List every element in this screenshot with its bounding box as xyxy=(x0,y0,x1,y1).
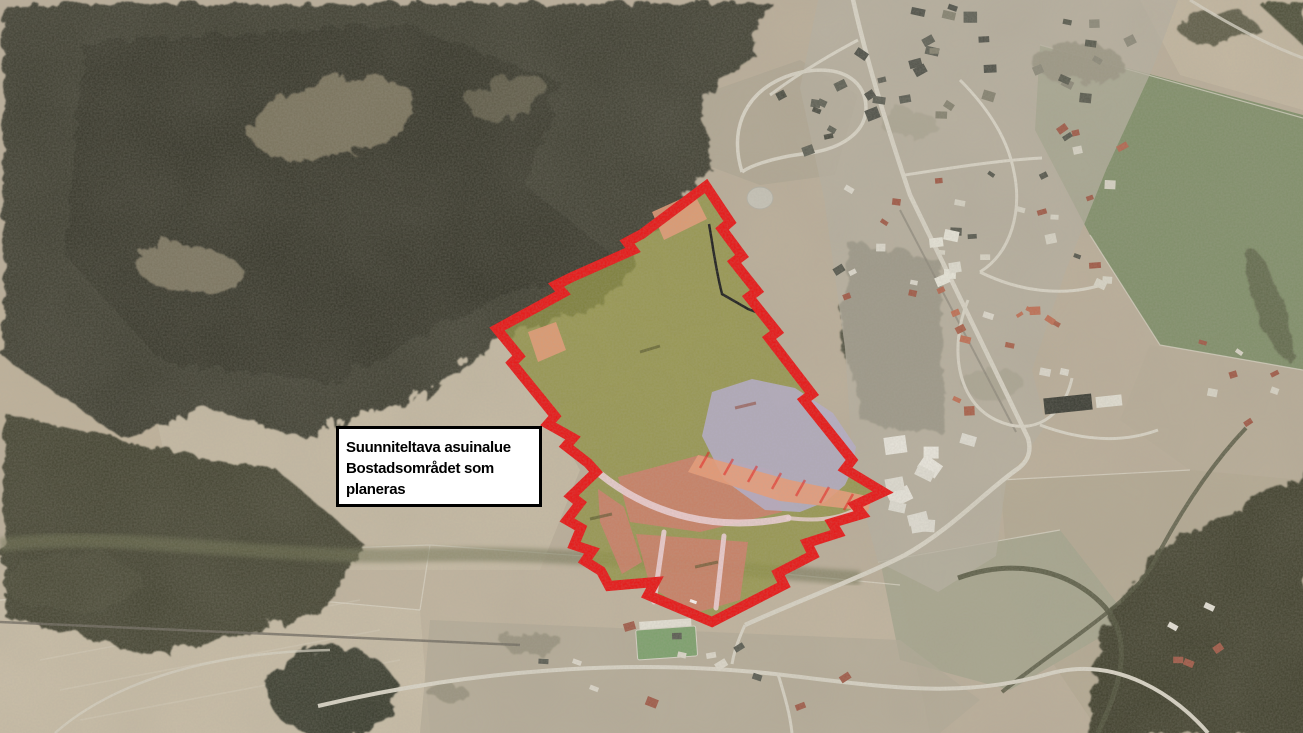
label-line-finnish: Suunniteltava asuinalue xyxy=(346,437,535,458)
house xyxy=(935,178,943,184)
house xyxy=(883,435,907,455)
planning-map-screenshot: Suunniteltava asuinalue Bostadsområdet s… xyxy=(0,0,1303,733)
house xyxy=(1104,180,1115,189)
tree-clump xyxy=(265,645,395,733)
house xyxy=(948,261,962,273)
house xyxy=(672,633,682,640)
house xyxy=(1089,19,1100,28)
house xyxy=(892,198,901,206)
aerial-photo-map xyxy=(0,0,1303,733)
house xyxy=(937,250,945,255)
house xyxy=(1079,93,1092,104)
house xyxy=(968,234,977,239)
house xyxy=(935,111,947,119)
industrial-hall xyxy=(635,618,698,660)
house xyxy=(876,244,885,252)
house xyxy=(1173,657,1183,664)
house xyxy=(978,36,989,43)
house xyxy=(538,659,548,665)
house xyxy=(1050,215,1058,220)
roundabout xyxy=(747,187,773,209)
house xyxy=(964,12,978,23)
house xyxy=(984,64,997,73)
house xyxy=(980,254,990,260)
house xyxy=(1089,262,1101,269)
house xyxy=(964,406,975,416)
house xyxy=(924,447,939,459)
label-line-swedish: Bostadsområdet som planeras xyxy=(346,458,535,500)
house xyxy=(930,48,940,54)
tree-clump xyxy=(0,552,140,608)
house xyxy=(1102,276,1112,284)
house xyxy=(929,237,944,248)
house xyxy=(1085,40,1097,48)
map-annotation-label: Suunniteltava asuinalue Bostadsområdet s… xyxy=(336,426,542,507)
green-roof-building xyxy=(636,626,698,660)
